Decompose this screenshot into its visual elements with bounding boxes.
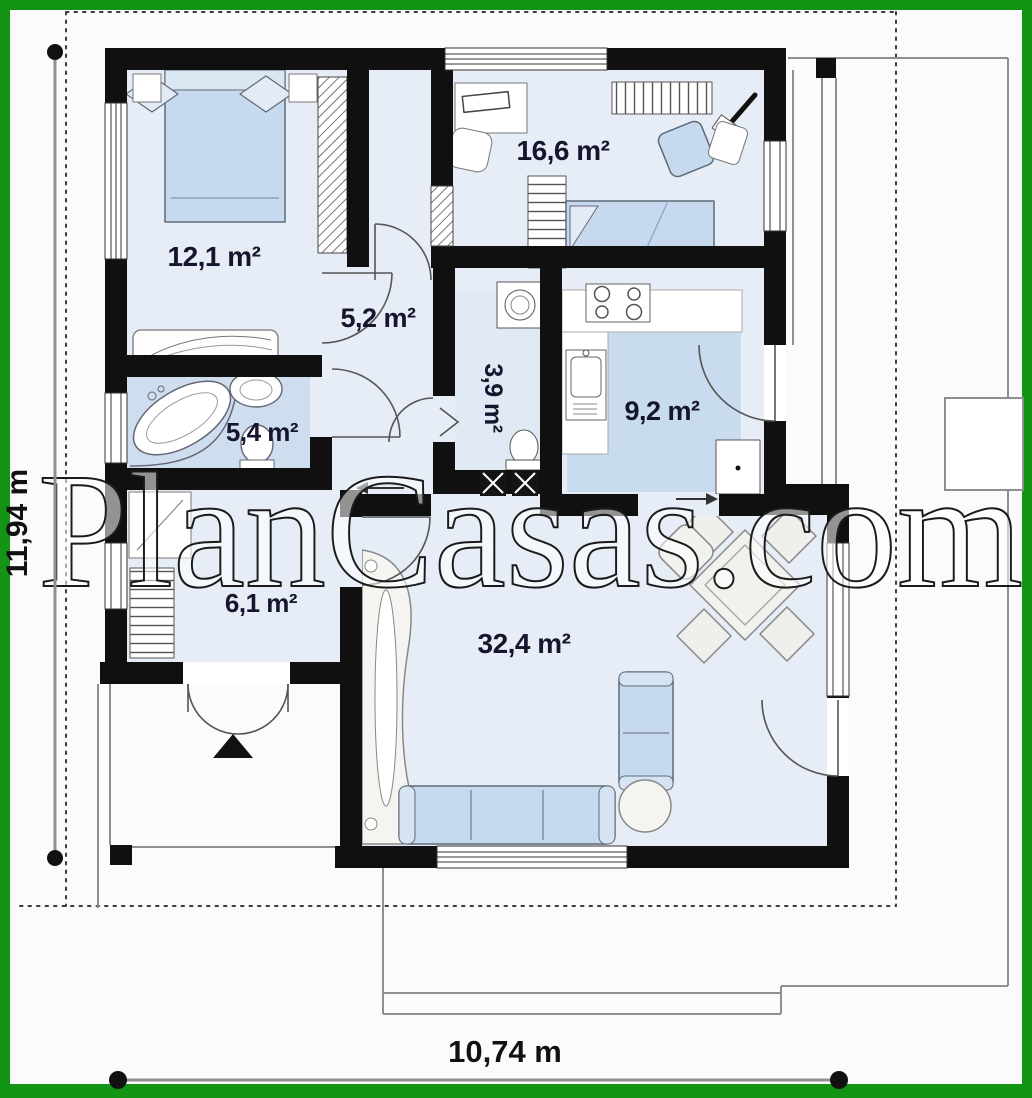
- label-hallway: 5,2 m²: [340, 303, 416, 333]
- sofa-two-seat: [619, 672, 673, 790]
- label-kitchen: 9,2 m²: [624, 396, 700, 426]
- label-living-room: 32,4 m²: [478, 628, 571, 659]
- window-living-south: [437, 846, 627, 868]
- watermark-text: PlanCasas.com: [38, 439, 1023, 622]
- window-bedroom-2: [764, 141, 786, 231]
- floor-plan-drawing: 12,1 m² 16,6 m² 5,2 m² 3,9 m² 9,2 m² 5,4…: [0, 0, 1032, 1098]
- window-bedroom-1: [105, 103, 127, 259]
- kitchen-sink: [566, 350, 606, 420]
- shelf-bedroom-2: [612, 82, 712, 114]
- floor-plan-page: 12,1 m² 16,6 m² 5,2 m² 3,9 m² 9,2 m² 5,4…: [0, 0, 1032, 1098]
- window-top: [445, 48, 607, 70]
- label-bedroom-2: 16,6 m²: [517, 135, 610, 166]
- dimension-height-label: 11,94 m: [1, 469, 34, 577]
- stove: [586, 284, 650, 322]
- label-utility: 3,9 m²: [479, 363, 507, 432]
- label-bedroom-1: 12,1 m²: [168, 241, 261, 272]
- washing-machine: [497, 282, 543, 328]
- wardrobe-bedroom-2: [431, 186, 453, 246]
- wardrobe-bedroom-1: [318, 77, 347, 253]
- coffee-table: [619, 780, 671, 832]
- sofa-three-seat: [399, 786, 615, 844]
- dimension-width-label: 10,74 m: [448, 1034, 562, 1069]
